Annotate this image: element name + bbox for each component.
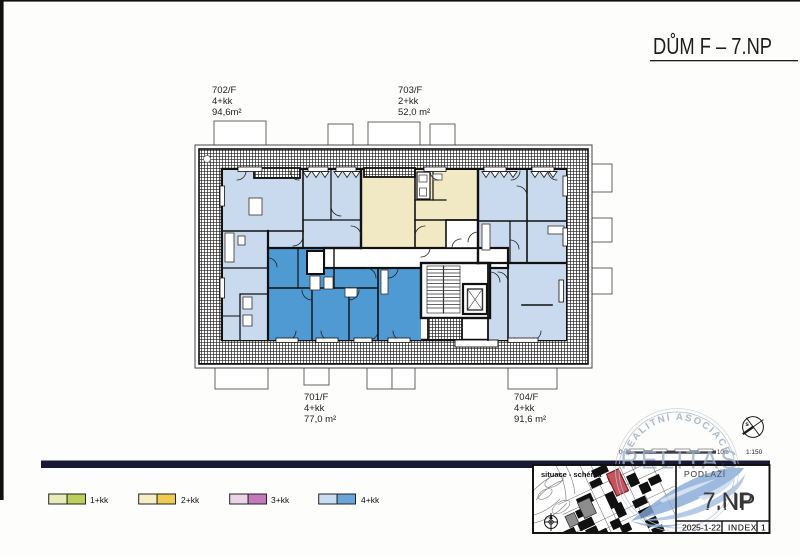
svg-text:3+kk: 3+kk: [271, 495, 290, 505]
svg-text:4+kk: 4+kk: [304, 403, 325, 414]
svg-text:INDEX: INDEX: [728, 523, 757, 533]
svg-text:1+kk: 1+kk: [90, 495, 109, 505]
svg-text:7.NP: 7.NP: [703, 488, 753, 513]
svg-text:PODLAŽÍ: PODLAŽÍ: [684, 469, 726, 479]
svg-text:situace - schéma: situace - schéma: [541, 470, 602, 479]
svg-text:1:150: 1:150: [746, 449, 763, 456]
svg-text:91,6 m²: 91,6 m²: [514, 414, 546, 425]
svg-text:703/F: 703/F: [398, 85, 422, 96]
svg-text:4+kk: 4+kk: [212, 96, 233, 107]
svg-text:4+kk: 4+kk: [514, 403, 535, 414]
svg-text:2025-1-22: 2025-1-22: [682, 523, 721, 533]
svg-text:701/F: 701/F: [304, 392, 328, 403]
svg-text:2+kk: 2+kk: [398, 96, 419, 107]
svg-text:DŮM F – 7.NP: DŮM F – 7.NP: [653, 31, 772, 59]
svg-text:77,0 m²: 77,0 m²: [304, 414, 336, 425]
svg-text:1: 1: [761, 523, 766, 533]
svg-text:4+kk: 4+kk: [361, 495, 380, 505]
svg-text:s: s: [745, 421, 749, 428]
svg-text:94,6m²: 94,6m²: [212, 107, 242, 118]
svg-text:702/F: 702/F: [212, 85, 236, 96]
svg-text:2+kk: 2+kk: [181, 495, 200, 505]
svg-text:52,0 m²: 52,0 m²: [398, 107, 430, 118]
svg-text:704/F: 704/F: [514, 392, 538, 403]
